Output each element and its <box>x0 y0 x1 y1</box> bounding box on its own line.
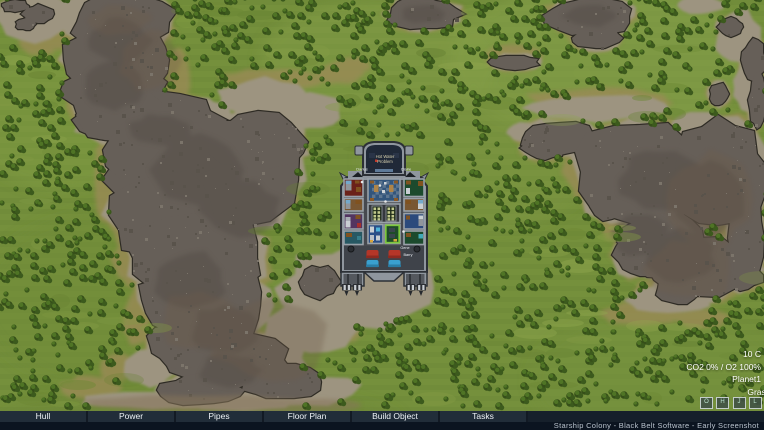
svg-text:Claire: Claire <box>401 167 412 172</box>
svg-text:Gene: Gene <box>400 246 409 250</box>
svg-text:Darius: Darius <box>356 167 368 172</box>
svg-text:Problem: Problem <box>377 159 393 164</box>
svg-text:Barry: Barry <box>403 253 412 257</box>
